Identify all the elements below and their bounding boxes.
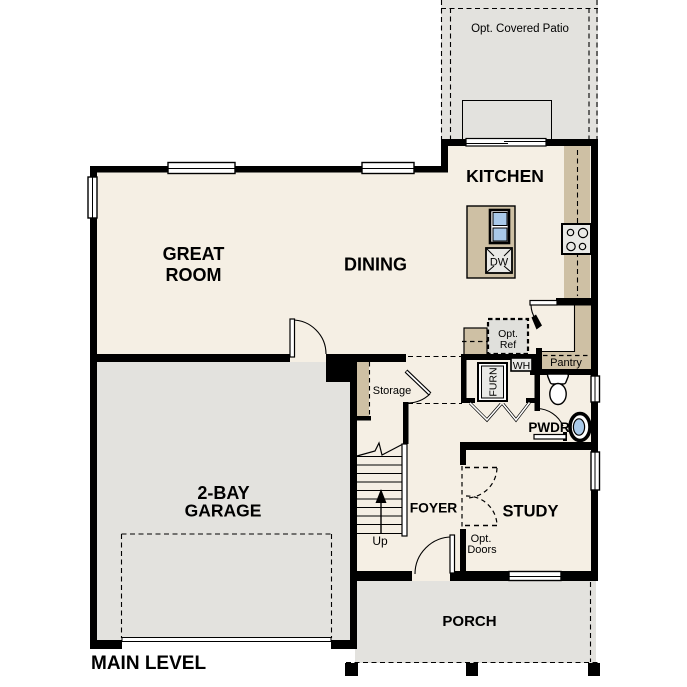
svg-text:FOYER: FOYER [410, 501, 458, 516]
svg-text:KITCHEN: KITCHEN [466, 166, 544, 186]
svg-text:Up: Up [372, 534, 388, 548]
svg-text:Pantry: Pantry [550, 357, 582, 369]
svg-text:Opt. Covered Patio: Opt. Covered Patio [471, 23, 569, 35]
svg-text:WH: WH [513, 360, 531, 372]
svg-text:STUDY: STUDY [503, 503, 559, 521]
svg-text:Ref: Ref [500, 339, 516, 351]
svg-text:GARAGE: GARAGE [185, 501, 262, 521]
svg-text:ROOM: ROOM [166, 265, 222, 285]
svg-text:Storage: Storage [373, 385, 412, 397]
svg-text:DINING: DINING [344, 255, 407, 275]
svg-text:GREAT: GREAT [163, 244, 225, 264]
svg-text:PWDR: PWDR [528, 420, 569, 435]
svg-text:MAIN LEVEL: MAIN LEVEL [91, 653, 206, 674]
svg-text:DW: DW [490, 257, 509, 269]
svg-text:FURN: FURN [488, 367, 500, 396]
svg-text:Doors: Doors [467, 544, 497, 556]
svg-text:PORCH: PORCH [442, 613, 496, 630]
